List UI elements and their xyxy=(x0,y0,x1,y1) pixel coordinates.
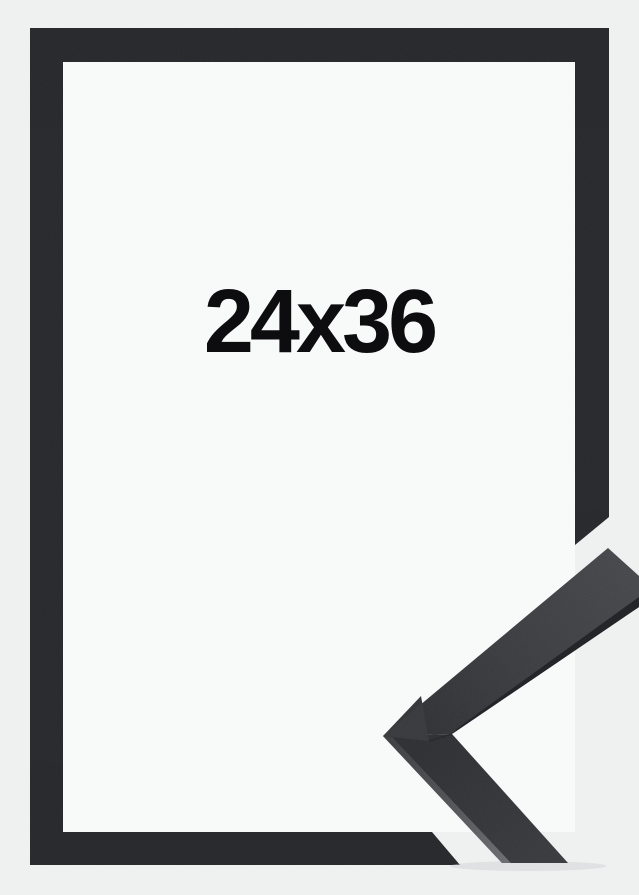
size-label: 24x36 xyxy=(63,277,575,367)
product-photo: 24x36 xyxy=(0,0,639,895)
frame-mat xyxy=(63,62,575,832)
frame-illustration xyxy=(0,0,639,895)
